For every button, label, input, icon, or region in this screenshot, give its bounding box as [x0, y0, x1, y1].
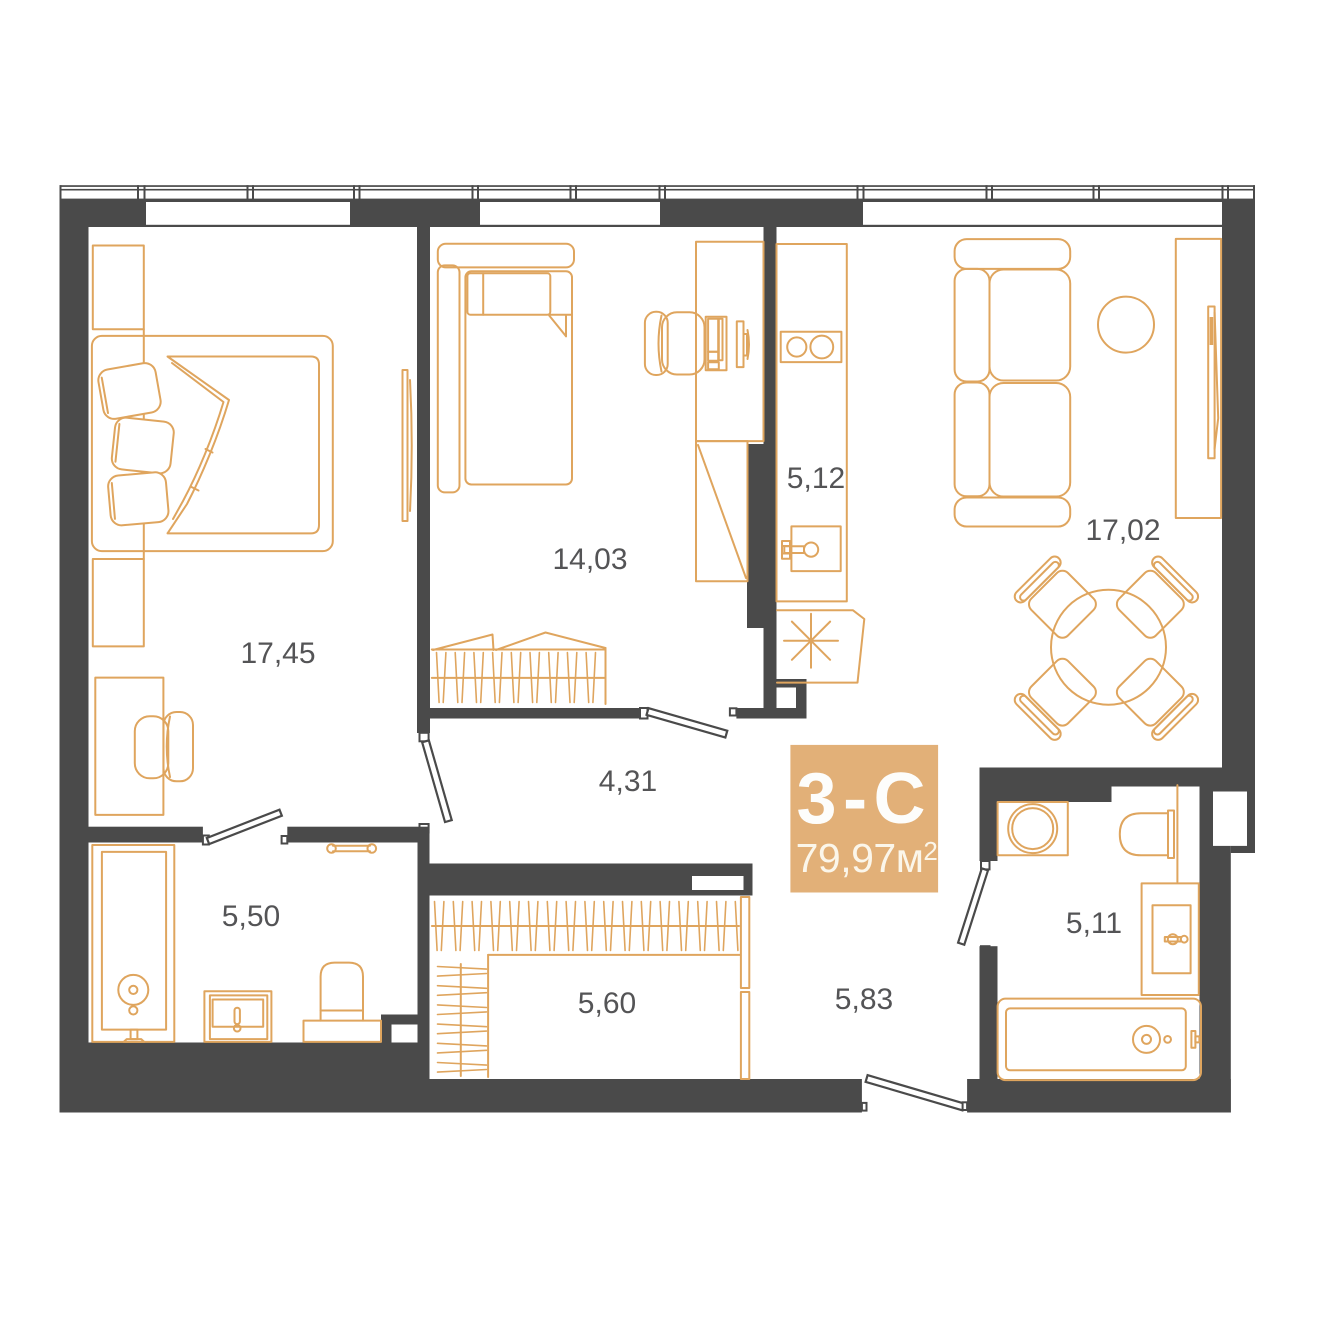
- svg-text:5,83: 5,83: [835, 983, 893, 1016]
- svg-text:5,12: 5,12: [787, 462, 845, 495]
- svg-text:17,45: 17,45: [240, 637, 315, 670]
- svg-text:17,02: 17,02: [1085, 514, 1160, 547]
- svg-text:14,03: 14,03: [552, 543, 627, 576]
- svg-text:4,31: 4,31: [599, 765, 657, 798]
- svg-text:5,60: 5,60: [578, 987, 636, 1020]
- svg-text:5,50: 5,50: [222, 900, 280, 933]
- svg-text:3-С: 3-С: [797, 759, 933, 839]
- svg-text:79,97м2: 79,97м2: [796, 835, 938, 881]
- svg-text:5,11: 5,11: [1066, 907, 1122, 940]
